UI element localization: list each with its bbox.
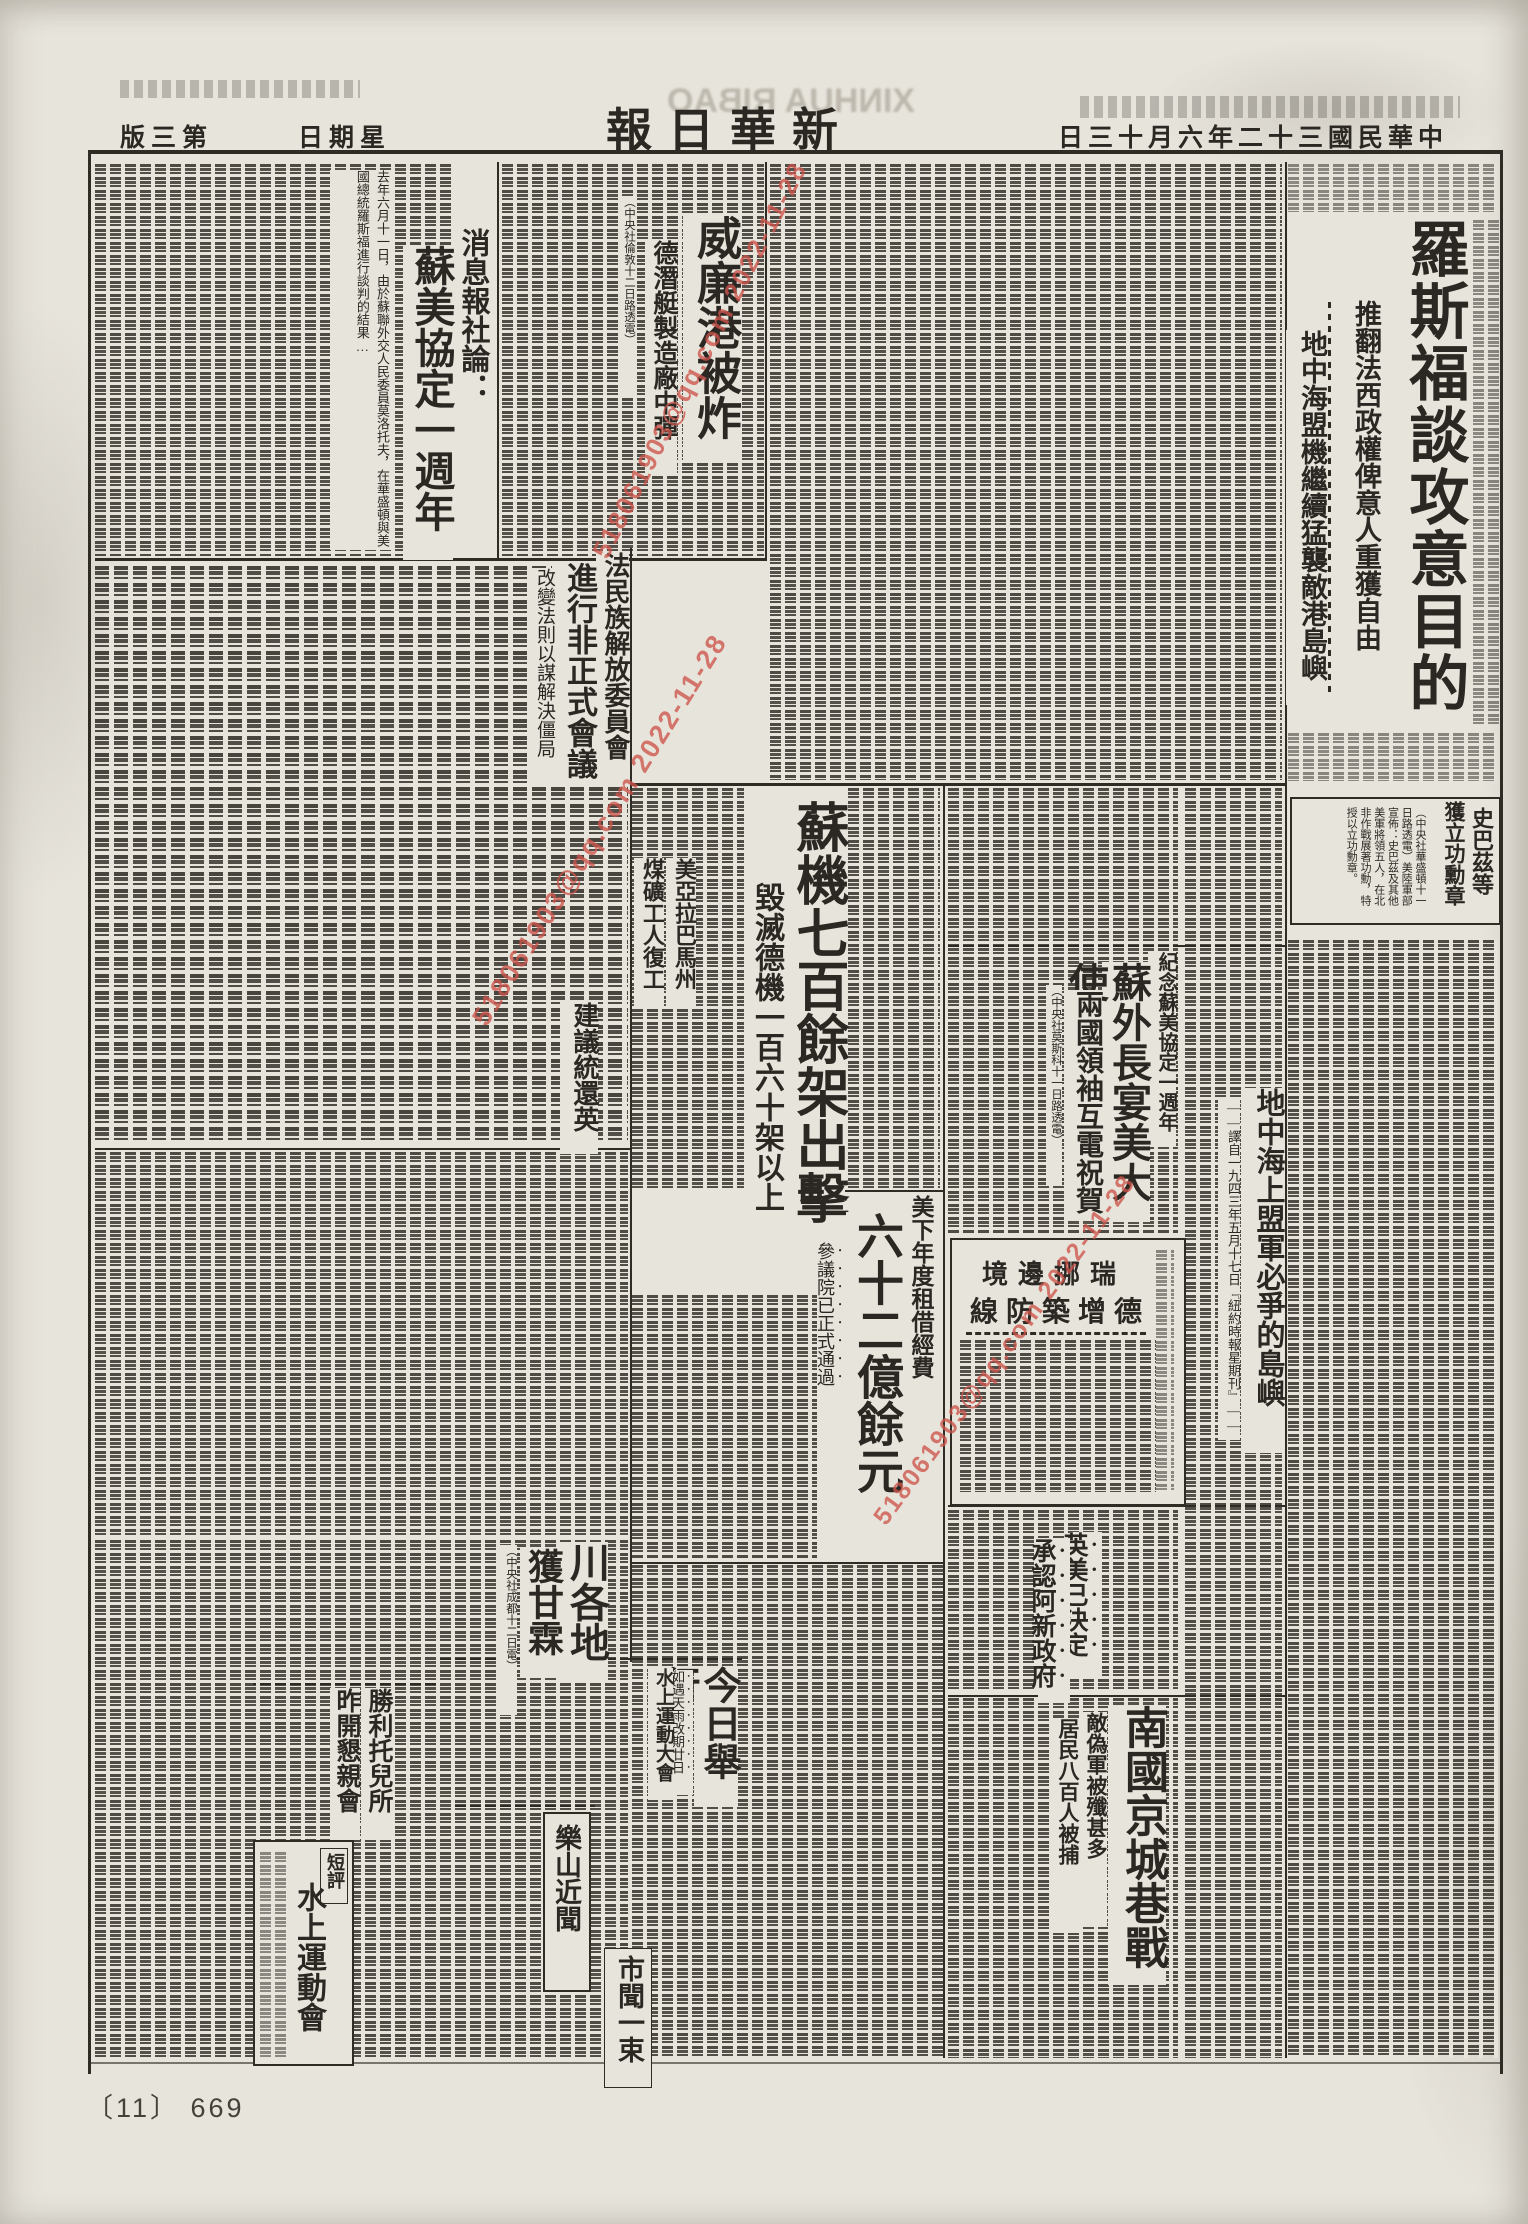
nursery-headline-left: 昨開懇親會 — [330, 1688, 360, 1840]
mediterranean-note: ——譯自一九四三年五月十七日『紐約時報星期刊』—— — [1218, 1100, 1240, 1440]
headline-underline — [966, 1332, 1146, 1335]
soviet-us-deck: 兩國領袖互電祝賀 — [1064, 990, 1102, 1220]
commentary-box: 短評 水上運動會 — [253, 1840, 354, 2066]
recognize-gov-headline-right: 英美已決定 — [1070, 1532, 1102, 1677]
edition-label: 第三版 — [120, 118, 213, 154]
roosevelt-body-text — [1288, 733, 1498, 781]
sichuan-rain-byline: （中央社成都十二日電） — [500, 1545, 517, 1715]
nanjing-deck-right: 敵偽軍被殲甚多 — [1080, 1712, 1107, 1927]
story-rule — [95, 1148, 630, 1150]
spaatz-headline-right: 史巴茲等 — [1467, 807, 1493, 917]
right-column-text — [1288, 940, 1498, 2058]
right-frame-rule — [1500, 150, 1503, 2074]
nanjing-deck-left: 居民八百人被捕 — [1052, 1718, 1079, 1933]
roosevelt-body-text — [770, 164, 1282, 780]
lend-lease-deck: 參議院已正式通過 — [818, 1242, 845, 1462]
sichuan-rain-headline-left: 獲甘霖 — [520, 1548, 562, 1678]
roosevelt-deck-right: 推翻法西政權俾意人重獲自由 — [1340, 300, 1380, 675]
weekday-label: 星期日 — [298, 118, 391, 154]
story-rule — [632, 1562, 943, 1564]
sweden-norway-byline-column — [1156, 1250, 1174, 1490]
center-bottom-body-text — [632, 1565, 943, 2058]
soviet-us-byline: （中央社莫斯科十一日路透電） — [1046, 985, 1062, 1185]
french-committee-deck: 改變法則以謀解決僵局 — [530, 568, 554, 783]
wilhelmshaven-byline: （中央社倫敦十二日路透電） — [618, 196, 635, 396]
commentary-label: 短評 — [324, 1853, 344, 1899]
sichuan-rain-headline-right: 川各地 — [560, 1542, 608, 1682]
city-news-box: 市聞一束 — [604, 1948, 652, 2088]
roosevelt-headline: 羅斯福談攻意目的 — [1388, 218, 1466, 728]
story-rule — [845, 1190, 943, 1192]
footer-page-mark: 〔11〕 669 — [86, 2086, 245, 2125]
editorial-lead-text: 去年六月十一日，由於蘇聯外交人民委員莫洛托夫，在華盛頓與美國總統羅斯福進行談判的… — [330, 170, 392, 550]
editorial-title: 蘇美協定一週年 — [403, 245, 453, 560]
ghost-text-strip — [120, 80, 360, 98]
lend-lease-body-text — [632, 1295, 817, 1558]
water-sports-kicker: 水上運動大會 — [648, 1668, 673, 1800]
issue-date: 中華民國三十二年六月十三日 — [1058, 118, 1448, 154]
roosevelt-body-text — [1288, 164, 1498, 212]
soviet-planes-deck: 毀滅德機一百六十架以上 — [744, 882, 782, 1282]
margin-column-text — [1473, 220, 1499, 725]
leshan-box: 樂山近聞 — [543, 1812, 591, 1992]
alabama-headline-left: 煤礦工人復工 — [634, 858, 664, 1008]
commentary-title: 水上運動會 — [286, 1882, 324, 2062]
mediterranean-headline: 地中海上盟軍必爭的島嶼 — [1243, 1088, 1283, 1453]
water-sports-headline: 今日舉行 — [694, 1666, 738, 1806]
spaatz-box: 史巴茲等 獲立功勳章 （中央社華盛頓十一日路透電）美陸軍部宣佈：史巴茲及其他美軍… — [1290, 797, 1501, 925]
spaatz-headline-left: 獲立功勳章 — [1439, 801, 1465, 921]
leshan-title: 樂山近聞 — [552, 1824, 580, 1980]
lend-lease-kicker: 美下年度租借經費 — [900, 1195, 932, 1435]
recognize-gov-headline-left: 承認阿新政府 — [1038, 1538, 1070, 1703]
roosevelt-deck-left: 地中海盟機繼續猛襲敵港島嶼 — [1286, 330, 1326, 705]
water-sports-note: 如遇天雨改期廿日 — [674, 1670, 693, 1795]
column-divider — [497, 162, 499, 558]
story-rule — [630, 783, 1287, 786]
left-mid-body-text — [95, 1152, 628, 1535]
alabama-headline-right: 美亞拉巴馬州 — [666, 858, 696, 1008]
deck-divider-wavy-line — [1328, 302, 1331, 692]
center-column-text — [848, 788, 940, 1188]
ghost-text-strip — [1080, 96, 1460, 118]
burma-headline: 建議統還英 — [560, 1002, 598, 1154]
french-committee-kicker: 法民族解放委員會 — [596, 552, 629, 787]
left-frame-rule — [88, 150, 91, 2074]
editorial-body-text — [95, 164, 455, 556]
french-committee-headline: 進行非正式會議 — [552, 562, 596, 787]
newspaper-page: XINHUA RIBAO 第三版 星期日 新華日報 中華民國三十二年六月十三日 … — [0, 0, 1528, 2224]
spaatz-body-text: （中央社華盛頓十一日路透電）美陸軍部宣佈：史巴茲及其他美軍將領五人，在北非作戰展… — [1296, 807, 1426, 913]
city-news-title: 市聞一束 — [613, 1955, 643, 2081]
nursery-headline-right: 勝利托兒所 — [362, 1688, 392, 1840]
commentary-body-text — [260, 1852, 286, 2057]
soviet-us-kicker: 紀念蘇美協定一週年 — [1148, 952, 1176, 1147]
soviet-planes-headline: 蘇機七百餘架出擊 — [782, 800, 846, 1278]
masthead-rule — [88, 150, 1503, 154]
editorial-kicker: 消息報社論： — [452, 228, 488, 528]
nanjing-headline: 南國京城巷戰 — [1108, 1705, 1166, 1985]
